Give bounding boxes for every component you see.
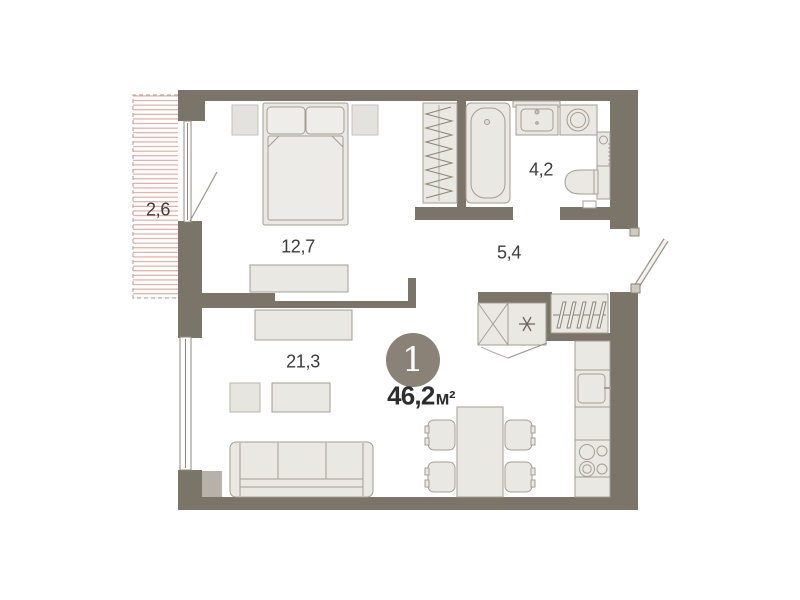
wall-bottom [178,497,638,510]
fridge [508,303,546,345]
entrance-door-jamb-top [630,228,639,236]
bed-pillow-right [306,107,344,134]
wall-niche-bottom [545,333,612,341]
side-table [230,383,260,412]
living-area-label: 21,3 [286,352,320,373]
bathroom-area-label: 4,2 [529,160,553,181]
kitchen-fixtures [575,341,611,497]
total-area-unit: м² [436,389,455,411]
bathtub-drain [485,120,490,125]
wall-right-lower [610,292,638,502]
wall-bath-bottom-left [415,207,513,220]
total-area-value: 46,2 [387,381,434,412]
wall-pilaster-block [202,471,222,497]
chair-nub-5 [531,426,535,433]
chair-nub-8 [531,480,535,487]
living-door-arc [481,347,508,358]
dining-set [425,407,535,497]
entrance-door-leaf [635,240,666,289]
chair-bottom-left [428,462,455,492]
toilet-detail [583,201,596,208]
hallway-area-label: 5,4 [497,243,521,264]
chair-nub-4 [425,480,429,487]
chair-top-right [505,420,532,450]
storage-wardrobe-x [478,303,508,345]
bedroom-area-label: 12,7 [281,237,315,258]
wall-left-mid [178,221,202,302]
unit-number: 1 [402,343,424,377]
bathroom-fixtures [466,101,610,208]
floor-plan-drawing [0,0,800,600]
living-sideboard [255,310,352,340]
balcony-floor-hatch [133,95,178,298]
bedroom-furniture [232,103,457,292]
wall-bath-bottom-right [560,207,610,220]
washbasin-drain [536,122,539,125]
chair-bottom-right [505,462,532,492]
chair-nub-6 [531,438,535,445]
chair-nub-7 [531,468,535,475]
floor-plan-page: 2,6 12,7 4,2 5,4 21,3 1 46,2 м² [0,0,800,600]
chair-nub-1 [425,426,429,433]
wall-right-upper [610,90,638,229]
wall-bedroom-living-thick [202,293,275,308]
entrance-door-hinge [631,284,640,293]
balcony-area-label: 2,6 [146,200,170,221]
wall-bedroom-living-thin [275,301,410,308]
dining-table [457,407,503,497]
bed-pillow-left [267,107,305,134]
nightstand-right [352,105,378,135]
coffee-table [272,383,330,412]
toilet-bowl [565,170,598,194]
unit-number-badge: 1 [386,333,440,387]
sofa-body [230,442,373,497]
balcony-door-leaf [190,172,217,221]
bathtub [466,103,510,203]
chair-top-left [428,420,455,450]
wall-hallway-living [478,292,551,303]
hallway-fixtures [551,294,608,333]
nightstand-left [232,105,258,135]
towel-radiator [597,132,610,166]
bedroom-dresser [250,265,348,292]
wall-left-low [178,300,202,338]
chair-nub-3 [425,468,429,475]
balcony-zone [133,95,178,298]
toilet-tank [597,166,610,199]
wall-top [178,90,638,101]
washbasin-faucet [535,110,539,114]
sofa [230,442,373,497]
wall-top-left-block [178,90,205,121]
chair-nub-2 [425,438,429,445]
bed-blanket [268,136,343,220]
total-area: 46,2 м² [387,381,455,412]
wall-bath-bedroom [457,101,466,215]
